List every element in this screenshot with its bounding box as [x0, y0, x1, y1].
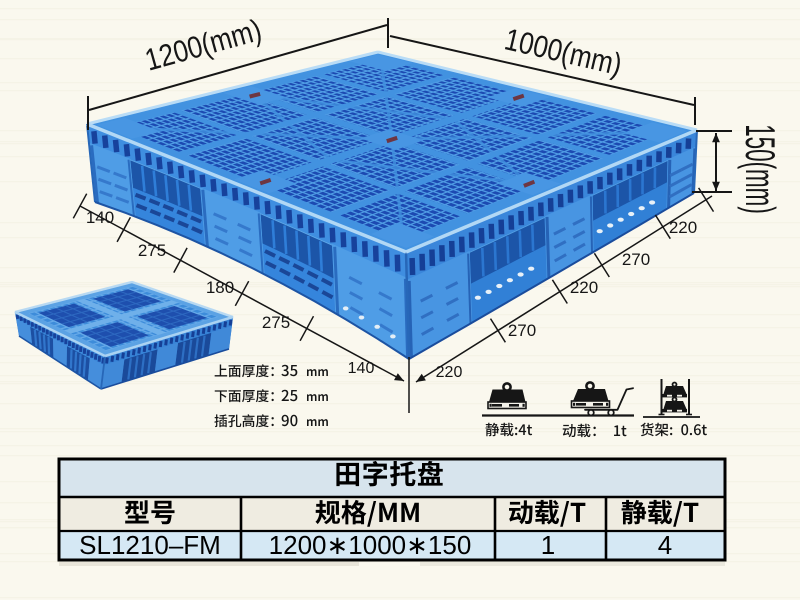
svg-text:270: 270 — [622, 250, 650, 269]
svg-text:220: 220 — [436, 364, 463, 381]
svg-text:275: 275 — [138, 241, 166, 260]
svg-text:150(mm): 150(mm) — [736, 124, 782, 214]
svg-text:270: 270 — [508, 321, 536, 340]
svg-text:140: 140 — [86, 208, 114, 227]
svg-text:1: 1 — [541, 530, 555, 560]
svg-text:220: 220 — [669, 218, 697, 237]
svg-text:SL1210–FM: SL1210–FM — [79, 530, 221, 560]
svg-text:1200∗1000∗150: 1200∗1000∗150 — [269, 530, 472, 560]
svg-text:4: 4 — [658, 530, 672, 560]
svg-text:220: 220 — [570, 278, 598, 297]
svg-text:140: 140 — [348, 360, 375, 377]
svg-text:275: 275 — [262, 313, 290, 332]
svg-text:180: 180 — [206, 278, 234, 297]
